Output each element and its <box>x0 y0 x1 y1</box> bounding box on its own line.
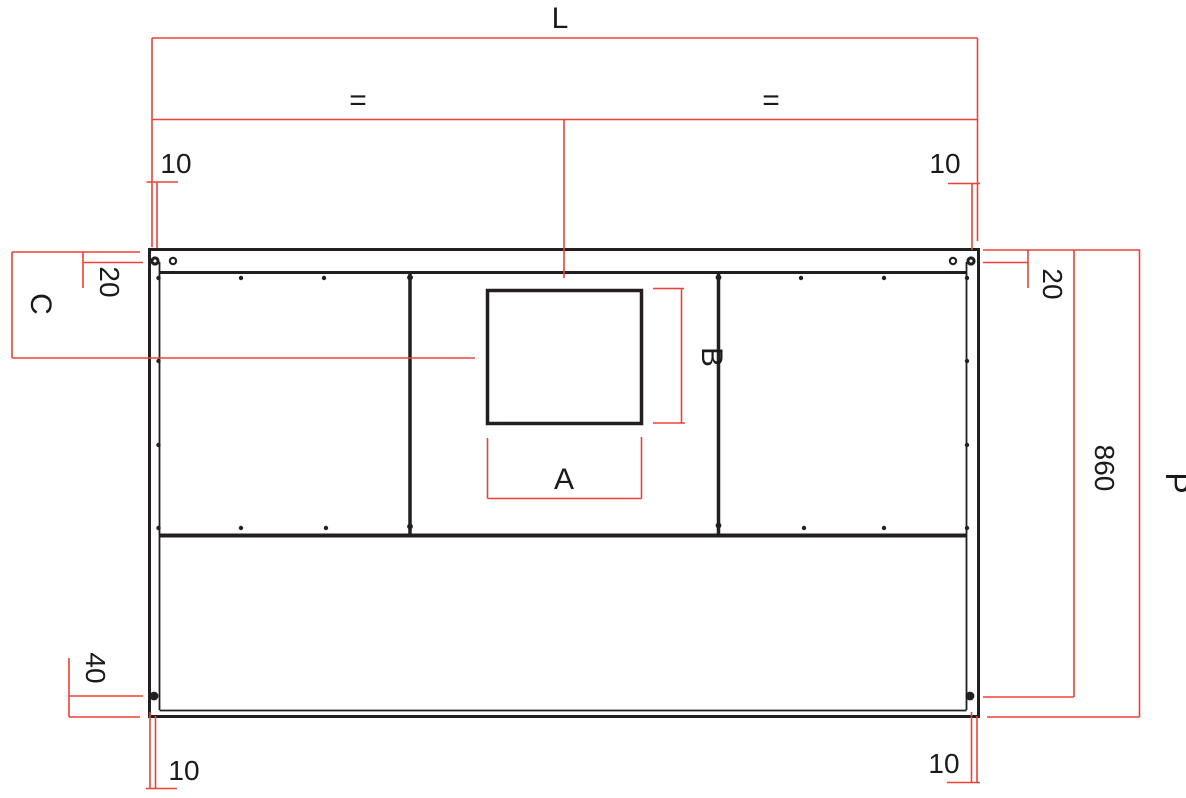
dim-label-L: L <box>552 2 569 35</box>
dim-label-20-left: 20 <box>94 266 125 297</box>
dim-label-20-right: 20 <box>1037 268 1068 299</box>
technical-drawing: L = = 10 10 C 20 20 860 P B A 40 10 10 <box>0 0 1186 798</box>
dim-label-10-top-right: 10 <box>929 148 960 179</box>
dim-label-equal-right: = <box>762 84 780 117</box>
dim-label-B: B <box>695 347 728 367</box>
dim-label-10-bottom-left: 10 <box>168 755 199 786</box>
dim-label-10-bottom-right: 10 <box>928 748 959 779</box>
dim-label-C: C <box>24 293 57 315</box>
dim-label-40: 40 <box>80 652 111 683</box>
square-cutout <box>488 291 642 424</box>
dim-label-P: P <box>1159 472 1186 493</box>
dim-label-10-top-left: 10 <box>160 148 191 179</box>
dim-label-A: A <box>554 463 574 496</box>
dim-label-860: 860 <box>1089 445 1120 492</box>
drawing-canvas: L = = 10 10 C 20 20 860 P B A 40 10 10 <box>0 0 1186 798</box>
dim-label-equal-left: = <box>349 84 367 117</box>
